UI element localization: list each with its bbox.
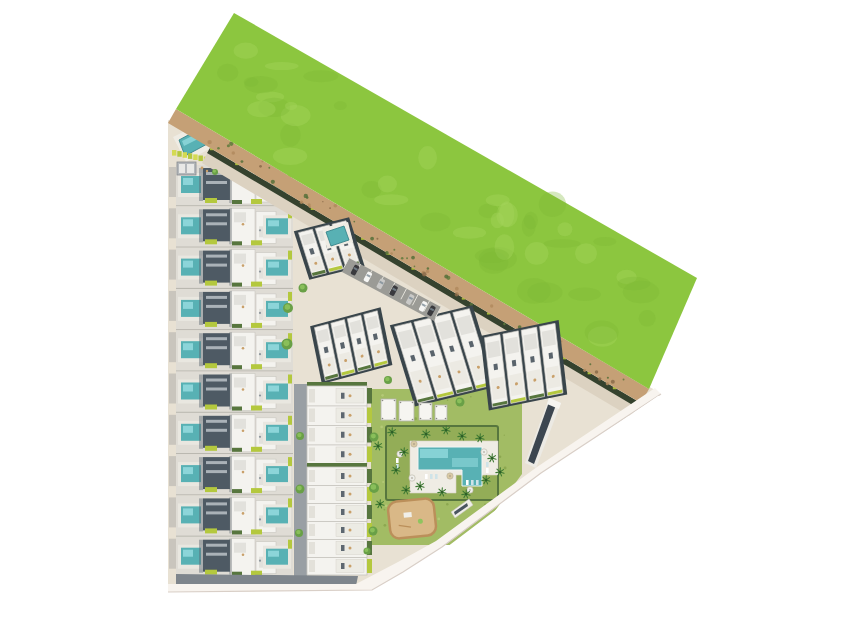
roof-line — [206, 379, 227, 382]
dirt-speckle — [308, 203, 311, 206]
alley — [294, 384, 307, 578]
garden-strip — [367, 447, 372, 463]
palm-crown — [485, 479, 487, 481]
garden-strip — [205, 405, 217, 410]
garden-strip — [251, 364, 262, 369]
villa-row — [169, 289, 293, 330]
lounger — [188, 153, 192, 159]
garden-strip — [367, 388, 372, 404]
rooftop-unit — [259, 271, 261, 273]
garden-strip — [251, 447, 262, 452]
grass-mottle — [593, 237, 616, 246]
pool-shimmer — [268, 468, 279, 474]
unit-entry — [309, 409, 315, 423]
tree — [384, 376, 392, 384]
villa-terrace-block — [169, 165, 293, 578]
lawn-speckle — [384, 524, 387, 527]
garden-strip — [205, 528, 217, 533]
wall-shadow — [229, 497, 232, 533]
umbrella-pole — [449, 475, 450, 476]
tree-highlight — [385, 377, 389, 381]
grass-mottle — [334, 101, 347, 110]
pergola-post — [400, 402, 402, 404]
villa-row — [169, 495, 293, 536]
pergola-post — [382, 418, 384, 420]
rooftop-unit — [341, 473, 345, 479]
lounger — [199, 156, 203, 162]
tree-highlight — [283, 340, 289, 346]
dirt-speckle — [589, 363, 591, 365]
lounger — [466, 480, 469, 485]
row-divider — [176, 494, 293, 495]
dirt-speckle — [607, 377, 609, 379]
unit-divider — [307, 485, 367, 486]
dirt-speckle — [385, 251, 389, 255]
tree — [299, 284, 308, 293]
rooftop-unit — [341, 432, 345, 438]
roof-line — [206, 222, 227, 225]
lounger — [183, 152, 187, 158]
unit-divider — [307, 503, 367, 504]
unit-entry — [309, 542, 315, 554]
terrace-furniture — [206, 170, 208, 172]
roof-line — [206, 213, 227, 216]
dirt-speckle — [411, 256, 415, 260]
rooftop-unit — [341, 545, 345, 551]
garden-strip — [232, 530, 242, 534]
pergola-post — [420, 404, 422, 406]
dirt-speckle — [300, 200, 303, 203]
lounger — [476, 480, 479, 485]
terrace-furniture — [242, 512, 245, 515]
pool-shimmer — [268, 427, 279, 433]
garden-strip — [232, 448, 242, 452]
dirt-speckle — [207, 140, 211, 144]
tree-highlight — [300, 285, 305, 290]
lawn-speckle — [380, 426, 383, 429]
roof-patch — [487, 340, 501, 358]
roof-line — [206, 346, 227, 349]
wall-shadow — [229, 208, 232, 244]
umbrella-pole — [399, 453, 400, 454]
lounger — [193, 154, 197, 160]
grass-mottle — [525, 242, 549, 265]
wall-shadow — [199, 333, 203, 366]
pergola-post — [445, 418, 447, 420]
tree — [456, 398, 465, 407]
site-plan-render — [0, 0, 850, 620]
garden-strip — [232, 365, 242, 369]
tree — [295, 529, 303, 537]
dirt-speckle — [393, 249, 395, 251]
garden-strip — [251, 529, 262, 534]
pool-shimmer — [268, 551, 279, 557]
rooftop-unit — [530, 356, 535, 363]
row-divider — [176, 536, 293, 537]
tree-highlight — [297, 486, 302, 491]
roof-line — [206, 470, 227, 473]
pool-shimmer — [183, 385, 193, 392]
roof-line — [206, 553, 227, 556]
palm-crown — [425, 433, 427, 435]
pergola-post — [400, 419, 402, 421]
unit-entry — [309, 470, 315, 482]
tree-highlight — [297, 433, 301, 437]
row-divider — [176, 371, 293, 372]
dirt-speckle — [598, 377, 601, 380]
roof-line — [206, 511, 227, 514]
garden-strip — [232, 283, 242, 287]
dirt-speckle — [370, 237, 374, 241]
pergola-post — [394, 400, 396, 402]
lawn-speckle — [504, 467, 507, 470]
palm-crown — [403, 451, 405, 453]
terrace-furniture — [242, 553, 245, 556]
dirt-speckle — [444, 274, 448, 278]
street-shadow — [169, 497, 176, 527]
unit-divider — [307, 557, 367, 558]
tree — [296, 485, 305, 494]
dirt-speckle — [217, 147, 220, 150]
pool-shimmer — [420, 449, 448, 458]
roof-line — [206, 305, 227, 308]
garden-strip — [205, 487, 217, 492]
dirt-speckle — [268, 167, 270, 169]
wall-shadow — [199, 457, 203, 490]
wall-shadow — [229, 291, 232, 327]
grass-mottle — [285, 102, 297, 110]
grass-mottle — [544, 239, 581, 248]
dirt-speckle — [456, 292, 458, 294]
dirt-speckle — [259, 165, 262, 168]
grass-mottle — [217, 64, 238, 82]
villa-row — [169, 372, 293, 413]
roof-patch — [505, 337, 519, 355]
villa-row — [169, 413, 293, 454]
pergola-post — [412, 402, 414, 404]
palm-crown — [405, 489, 407, 491]
pool-shimmer — [183, 467, 193, 474]
terrace-furniture — [349, 433, 352, 436]
unit-entry — [309, 560, 315, 572]
tree-highlight — [371, 434, 376, 439]
wall-shadow — [229, 415, 232, 451]
terrace-furniture — [349, 565, 352, 568]
pool-shimmer — [183, 343, 193, 350]
tree-highlight — [371, 484, 377, 490]
terrace-furniture — [349, 394, 352, 397]
lounger — [486, 468, 489, 473]
garden-strip — [232, 241, 242, 245]
grass-mottle — [420, 213, 450, 232]
palm-crown — [379, 503, 381, 505]
umbrella-pole — [483, 451, 484, 452]
rooftop-unit — [259, 229, 261, 231]
rooftop-unit — [259, 477, 261, 479]
roof-line — [206, 461, 227, 464]
palm-crown — [479, 437, 481, 439]
tree — [370, 433, 379, 442]
terrace-furniture — [201, 167, 204, 170]
dirt-speckle — [611, 380, 615, 384]
play-equipment — [403, 512, 411, 518]
street-shadow — [169, 456, 176, 486]
pergola-post — [382, 400, 384, 402]
rooftop-unit — [341, 451, 345, 457]
villa-row — [169, 454, 293, 495]
block-hedge — [307, 463, 367, 467]
roof-patch — [234, 460, 246, 470]
terrace-furniture — [242, 306, 245, 309]
rooftop-unit — [259, 394, 261, 396]
pavilion-roof — [187, 164, 194, 173]
rooftop-unit — [341, 412, 345, 418]
wall-shadow — [199, 251, 203, 284]
roof-line — [206, 181, 227, 184]
roof-patch — [523, 333, 537, 351]
roof-patch — [234, 295, 246, 305]
pool-shimmer — [183, 508, 193, 515]
wall-shadow — [199, 168, 203, 201]
grass-mottle — [585, 321, 619, 345]
pergola — [435, 405, 447, 420]
grass-mottle — [522, 215, 536, 237]
garden-strip — [367, 408, 372, 424]
pool-shimmer — [268, 303, 279, 309]
dirt-speckle — [353, 221, 355, 223]
terrace-furniture — [349, 547, 352, 550]
villa-cluster — [480, 320, 567, 410]
pool-shimmer — [268, 509, 279, 515]
tree — [282, 339, 293, 350]
tree — [296, 432, 304, 440]
grass-mottle — [639, 310, 656, 327]
lawn-speckle — [382, 481, 384, 483]
wall-shadow — [199, 292, 203, 325]
garden-strip — [288, 457, 292, 466]
grass-mottle — [475, 248, 509, 263]
unit-divider — [307, 539, 367, 540]
umbrella-pole — [413, 443, 414, 444]
pool-shimmer — [183, 302, 193, 309]
roof-line — [206, 388, 227, 391]
tree-highlight — [285, 304, 291, 310]
dirt-speckle — [426, 270, 430, 274]
wall-shadow — [199, 375, 203, 408]
row-divider — [176, 329, 293, 330]
roof-line — [206, 420, 227, 423]
pool-shimmer — [183, 219, 193, 226]
street-shadow — [169, 167, 176, 197]
dirt-speckle — [376, 238, 378, 240]
dirt-speckle — [406, 257, 408, 259]
lounger — [396, 458, 399, 463]
wall-shadow — [229, 332, 232, 368]
grass-mottle — [557, 222, 572, 236]
terrace-furniture — [242, 471, 245, 474]
lawn-speckle — [381, 394, 384, 397]
palm-crown — [499, 471, 501, 473]
tree-highlight — [296, 530, 300, 534]
rooftop-unit — [341, 527, 345, 533]
dirt-speckle — [623, 379, 625, 381]
tree — [369, 483, 379, 493]
lawn-speckle — [437, 518, 440, 521]
pergola-post — [445, 406, 447, 408]
dirt-speckle — [455, 287, 459, 291]
tree — [369, 527, 378, 536]
terrace-furniture — [242, 223, 245, 226]
unit-entry — [309, 506, 315, 518]
dirt-speckle — [240, 160, 243, 163]
pergola-post — [436, 406, 438, 408]
roof-line — [206, 544, 227, 547]
palm-crown — [465, 493, 467, 495]
row-divider — [176, 247, 293, 248]
villa-row — [169, 248, 293, 289]
dirt-speckle — [329, 207, 331, 209]
unit-divider — [307, 445, 367, 446]
garden-strip — [251, 282, 262, 287]
garden-strip — [232, 489, 242, 493]
grass-mottle — [265, 62, 299, 70]
villa-row — [169, 537, 293, 578]
rooftop-unit — [259, 436, 261, 438]
grass-mottle — [303, 70, 338, 82]
wall-shadow — [229, 250, 232, 286]
garden-strip — [251, 323, 262, 328]
site-plan-canvas — [0, 0, 850, 620]
dirt-speckle — [333, 204, 337, 208]
pergola-post — [394, 418, 396, 420]
grass-mottle — [247, 101, 275, 117]
lounger — [177, 151, 181, 157]
pergola — [419, 403, 432, 420]
roof-line — [206, 296, 227, 299]
tree-highlight — [370, 528, 375, 533]
lounger — [172, 150, 176, 156]
umbrella-pole — [469, 489, 470, 490]
roof-patch — [234, 212, 246, 222]
rooftop-unit — [493, 364, 498, 371]
rooftop-unit — [259, 312, 261, 314]
terrace-furniture — [349, 511, 352, 514]
lounger — [435, 474, 438, 479]
pergola-post — [430, 418, 432, 420]
grass-mottle — [623, 281, 660, 303]
roof-line — [206, 502, 227, 505]
street-shadow — [169, 208, 176, 238]
pergola-post — [436, 418, 438, 420]
roof-patch — [234, 254, 246, 264]
unit-divider — [307, 406, 367, 407]
garden-strip — [205, 446, 217, 451]
garden-strip — [367, 559, 372, 573]
pool-shimmer — [183, 261, 193, 268]
lounger — [425, 474, 428, 479]
grass-mottle — [378, 176, 397, 193]
tree-highlight — [364, 548, 368, 552]
street-shadow — [169, 374, 176, 404]
lounger — [471, 480, 474, 485]
palm-crown — [419, 485, 421, 487]
lawn-speckle — [446, 503, 448, 505]
lawn-speckle — [447, 400, 448, 401]
playground-surface — [387, 498, 437, 540]
umbrella-pole — [411, 477, 412, 478]
dirt-speckle — [262, 161, 264, 163]
lawn-speckle — [384, 509, 386, 511]
apartment-strip — [294, 382, 372, 578]
tree — [364, 548, 371, 555]
terrace-furniture — [242, 264, 245, 267]
garden-strip — [232, 407, 242, 411]
rooftop-unit — [341, 509, 345, 515]
pool-shimmer — [268, 344, 279, 350]
roof-line — [206, 264, 227, 267]
garden-strip — [251, 240, 262, 245]
unit-entry — [309, 389, 315, 403]
grass-mottle — [280, 124, 300, 147]
pergola-post — [430, 404, 432, 406]
row-divider — [176, 453, 293, 454]
wall-shadow — [199, 498, 203, 531]
grass-mottle — [568, 287, 601, 301]
dirt-speckle — [304, 194, 308, 198]
terrace-furniture — [349, 493, 352, 496]
rooftop-unit — [259, 518, 261, 520]
roof-patch — [234, 336, 246, 346]
grass-mottle — [244, 76, 277, 93]
garden-strip — [367, 505, 372, 519]
rooftop-unit — [341, 491, 345, 497]
roof-patch — [234, 419, 246, 429]
garden-strip — [205, 322, 217, 327]
grass-mottle — [234, 43, 258, 59]
street-shadow — [169, 539, 176, 569]
wall-shadow — [229, 374, 232, 410]
terrace-furniture — [242, 388, 245, 391]
palm-crown — [441, 491, 443, 493]
roof-patch — [234, 378, 246, 388]
roof-patch — [234, 543, 246, 553]
tree-highlight — [457, 399, 462, 404]
roof-patch — [234, 501, 246, 511]
grass-mottle — [374, 194, 408, 205]
lounger — [430, 474, 433, 479]
street-shadow — [169, 291, 176, 321]
lawn-speckle — [414, 417, 417, 420]
terrace-furniture — [242, 347, 245, 350]
grass-mottle — [491, 212, 504, 228]
unit-entry — [309, 428, 315, 442]
garden-strip — [288, 375, 292, 384]
wall-shadow — [229, 539, 232, 575]
dirt-speckle — [232, 151, 235, 154]
pool-shimmer — [268, 220, 279, 226]
garden-strip — [288, 540, 292, 549]
dirt-speckle — [390, 252, 393, 255]
dirt-speckle — [583, 369, 586, 372]
garden-strip — [232, 200, 242, 204]
tree — [212, 169, 218, 175]
dirt-speckle — [414, 266, 416, 268]
grass-mottle — [517, 278, 551, 304]
garden-strip — [288, 498, 292, 507]
pool-shimmer — [183, 550, 193, 557]
playground — [387, 498, 437, 540]
grass-mottle — [453, 226, 486, 238]
